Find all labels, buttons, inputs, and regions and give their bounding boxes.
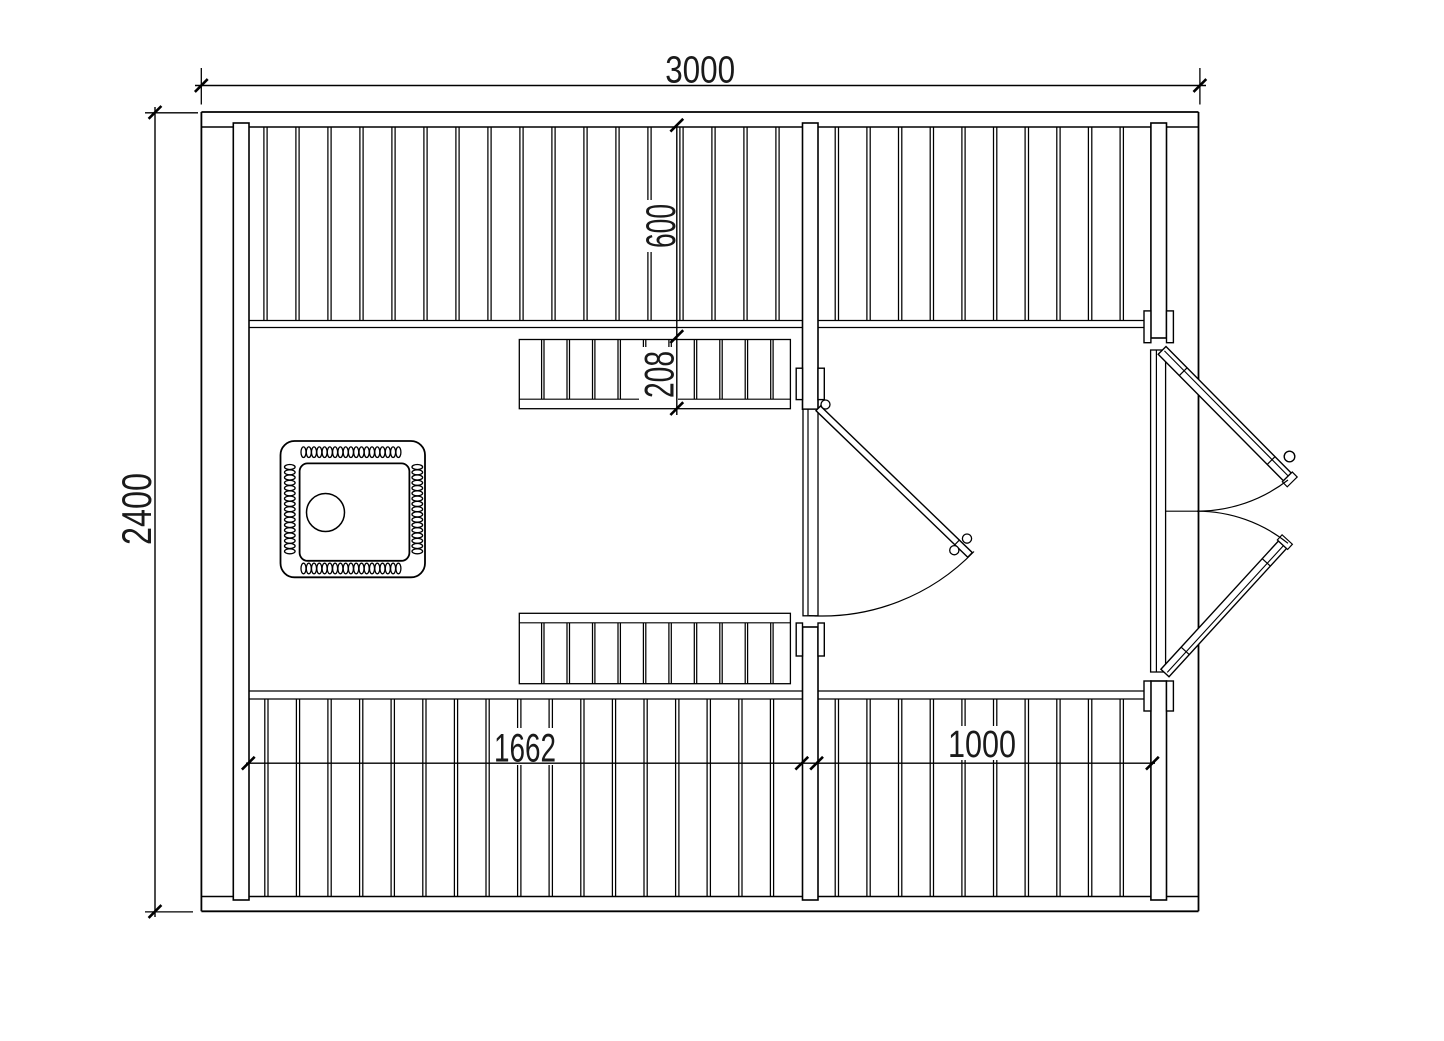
svg-text:208: 208 — [636, 351, 683, 398]
svg-text:1000: 1000 — [948, 724, 1016, 766]
svg-text:600: 600 — [637, 204, 684, 248]
svg-text:2400: 2400 — [113, 473, 160, 545]
svg-text:1662: 1662 — [494, 727, 556, 771]
svg-text:3000: 3000 — [665, 50, 735, 92]
